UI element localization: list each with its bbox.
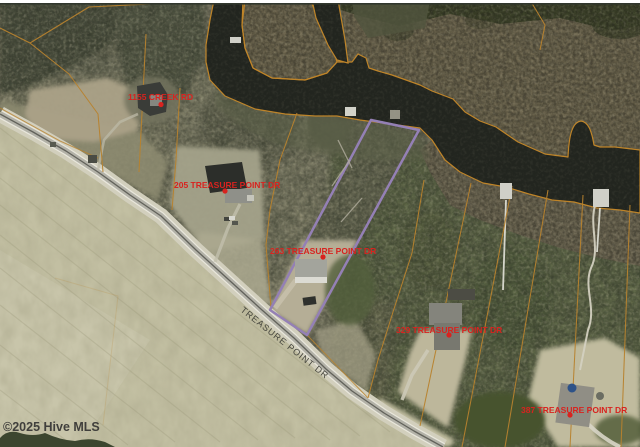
svg-text:387 TREASURE POINT DR: 387 TREASURE POINT DR [521, 405, 627, 415]
svg-text:1155 CREEK RD: 1155 CREEK RD [128, 92, 193, 102]
svg-text:©2025 Hive MLS: ©2025 Hive MLS [3, 420, 100, 434]
svg-text:205 TREASURE POINT DR: 205 TREASURE POINT DR [174, 180, 280, 190]
